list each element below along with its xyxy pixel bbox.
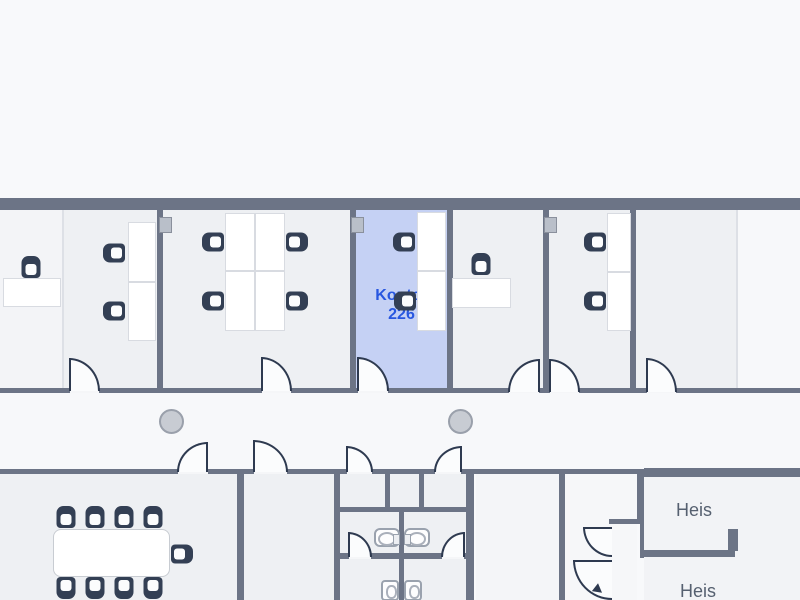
chair-seat xyxy=(61,580,72,591)
open-area-right xyxy=(738,210,800,388)
office-chair xyxy=(86,506,105,528)
chair-seat xyxy=(26,264,37,275)
desk xyxy=(3,278,61,307)
desk xyxy=(417,271,446,331)
office-chair xyxy=(202,292,224,311)
wall xyxy=(644,468,800,477)
chair-seat xyxy=(148,580,159,591)
office-chair xyxy=(103,244,125,263)
chair-seat xyxy=(90,514,101,525)
wall xyxy=(334,507,474,512)
wall xyxy=(0,198,800,210)
wall xyxy=(0,388,800,393)
desk xyxy=(128,282,156,341)
chair-seat xyxy=(401,237,412,248)
office-chair xyxy=(286,233,308,252)
column-icon xyxy=(159,409,184,434)
floor-plan: Kontor 226 Heis Heis xyxy=(0,0,800,600)
office-chair xyxy=(86,577,105,599)
desk xyxy=(452,278,511,308)
chair-seat xyxy=(476,261,487,272)
glass-partition xyxy=(62,210,64,388)
toilet-bowl xyxy=(409,585,420,599)
chair-seat xyxy=(289,237,300,248)
office-chair xyxy=(115,506,134,528)
wall-cabinet-icon xyxy=(351,217,364,233)
chair-seat xyxy=(111,248,122,259)
utility-room[interactable] xyxy=(476,474,559,600)
desk xyxy=(607,272,631,331)
wall xyxy=(157,210,163,388)
wall-cabinet-icon xyxy=(159,217,172,233)
office-chair xyxy=(171,545,193,564)
desk xyxy=(255,271,285,331)
small-room[interactable] xyxy=(244,474,334,600)
chair-seat xyxy=(210,237,221,248)
wall xyxy=(0,469,644,474)
chair-seat xyxy=(592,296,603,307)
elevator-label-top: Heis xyxy=(644,500,744,521)
elevator-label-bottom: Heis xyxy=(648,581,748,600)
office-chair xyxy=(286,292,308,311)
toilet-icon xyxy=(381,580,399,600)
chair-seat xyxy=(90,580,101,591)
wall-cabinet-icon xyxy=(544,217,557,233)
office-chair xyxy=(394,292,416,311)
sink-icon xyxy=(374,528,400,547)
wall xyxy=(237,474,244,600)
meeting-table xyxy=(53,529,170,577)
desk xyxy=(255,213,285,271)
column-icon xyxy=(448,409,473,434)
wall xyxy=(728,529,738,551)
office-chair xyxy=(472,253,491,275)
sink-icon xyxy=(404,528,430,547)
wall xyxy=(637,474,644,524)
wall xyxy=(643,550,735,557)
office-chair xyxy=(115,577,134,599)
desk xyxy=(225,213,255,271)
office-chair xyxy=(393,233,415,252)
desk xyxy=(417,212,446,271)
office-chair xyxy=(103,302,125,321)
sink-tap xyxy=(393,534,400,545)
desk xyxy=(607,213,631,272)
wall xyxy=(609,519,644,524)
office-chair xyxy=(144,506,163,528)
office-chair xyxy=(584,292,606,311)
office-chair xyxy=(144,577,163,599)
wall xyxy=(466,474,474,600)
desk xyxy=(128,222,156,282)
sink-tap xyxy=(404,534,411,545)
office-chair xyxy=(202,233,224,252)
chair-seat xyxy=(61,514,72,525)
wall xyxy=(559,474,565,600)
office-chair xyxy=(584,233,606,252)
toilet-bowl xyxy=(386,585,397,599)
office-chair xyxy=(57,577,76,599)
chair-seat xyxy=(592,237,603,248)
glass-partition xyxy=(736,210,738,388)
desk xyxy=(225,271,255,331)
chair-seat xyxy=(289,296,300,307)
chair-seat xyxy=(402,296,413,307)
wall xyxy=(334,474,340,600)
chair-seat xyxy=(148,514,159,525)
toilet-icon xyxy=(404,580,422,600)
chair-seat xyxy=(210,296,221,307)
office-chair xyxy=(22,256,41,278)
chair-seat xyxy=(119,514,130,525)
chair-seat xyxy=(119,580,130,591)
corridor xyxy=(0,393,800,469)
office-chair xyxy=(57,506,76,528)
chair-seat xyxy=(174,549,185,560)
chair-seat xyxy=(111,306,122,317)
